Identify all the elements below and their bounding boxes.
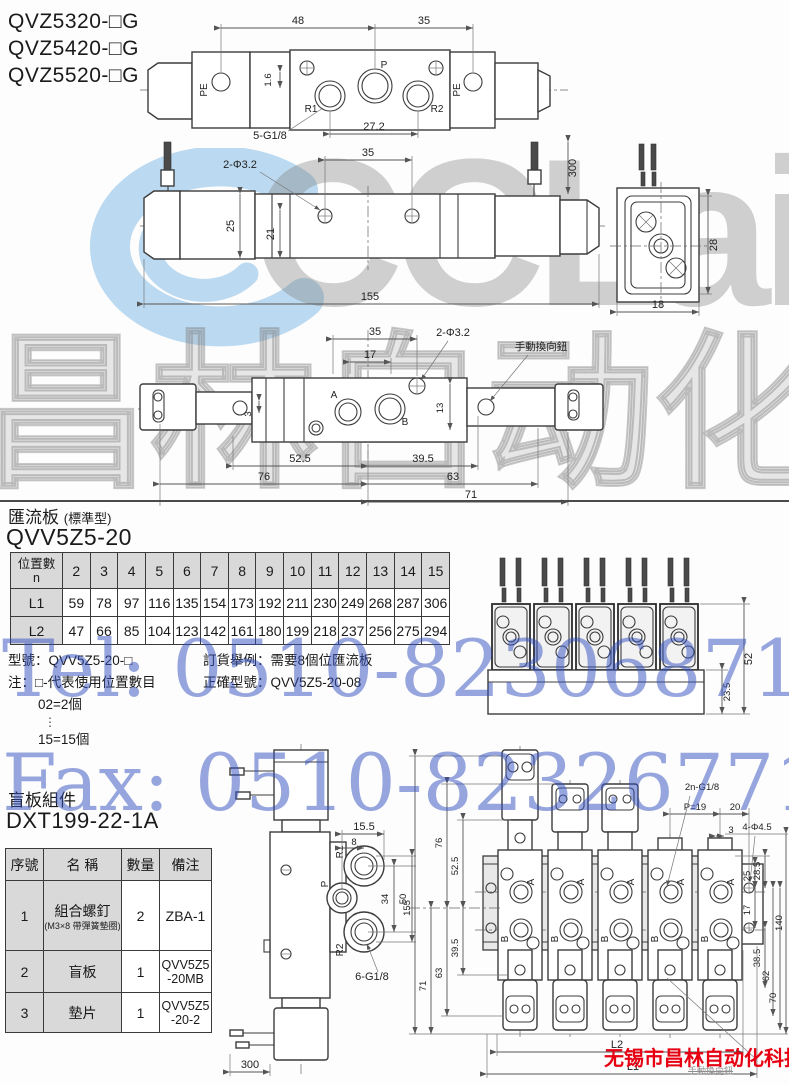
catalog-page: CCLair 昌林自动化 QVZ5320-□G QVZ5420-□G QVZ55… bbox=[0, 0, 789, 1085]
dim-52-5: 52.5 bbox=[289, 453, 310, 465]
drawing-bottom-view: 3 A B 2-Φ3.2 35 17 13 手動換向鈕 52.5 39.5 bbox=[138, 324, 608, 510]
dim-35: 35 bbox=[369, 326, 381, 338]
dim-39-5: 39.5 bbox=[412, 453, 433, 465]
dim-34: 34 bbox=[380, 894, 391, 905]
ordering-note-left: 型號：QVV5Z5-20-□ 注：□-代表使用位置數目 02=2個 ⋮ 15=1… bbox=[8, 650, 203, 751]
dim-62: 62 bbox=[761, 971, 772, 982]
dim-48: 48 bbox=[292, 15, 304, 27]
port-label-b: B bbox=[700, 935, 711, 942]
dim-38-5: 38.5 bbox=[752, 949, 763, 968]
thread-note-2ng18: 2n-G1/8 bbox=[685, 782, 719, 793]
port-label-r1: R1 bbox=[335, 845, 346, 858]
drawing-valve-vertical: 300 R1 P R2 15.5 8 34 50 6-G1/8 bbox=[228, 744, 420, 1085]
port-label-p: P bbox=[320, 880, 331, 887]
dim-1-6: 1.6 bbox=[263, 73, 274, 86]
dim-13: 13 bbox=[435, 403, 446, 414]
model-3: QVZ5520-□G bbox=[8, 62, 139, 89]
port-label-b: B bbox=[500, 935, 511, 942]
ellipsis: ⋮ bbox=[44, 716, 203, 729]
mount-plate-left bbox=[140, 384, 196, 430]
section-divider bbox=[0, 500, 789, 502]
drawing-manifold-side: 52 23.5 bbox=[478, 552, 789, 720]
parts-row-2: 2 盲板 1 QVV5Z5-20MB bbox=[6, 951, 212, 993]
holes-note-2phi32: 2-Φ3.2 bbox=[436, 327, 470, 339]
dim-15-5: 15.5 bbox=[353, 821, 374, 833]
order-example-line: 訂貨舉例：需要8個位匯流板 bbox=[203, 650, 453, 672]
manifold-valves bbox=[492, 558, 698, 670]
dim-39-5: 39.5 bbox=[450, 939, 461, 958]
mount-plate-right bbox=[555, 384, 603, 430]
dim-155: 155 bbox=[361, 291, 379, 303]
parts-row-3: 3 墊片 1 QVV5Z5-20-2 bbox=[6, 993, 212, 1033]
holes-note-4phi45: 4-Φ4.5 bbox=[742, 822, 771, 833]
manifold-base bbox=[488, 670, 704, 714]
port-label-a: A bbox=[331, 390, 338, 401]
thread-note-6g18: 6-G1/8 bbox=[355, 971, 389, 983]
solenoid-bottom bbox=[230, 998, 328, 1060]
dim-300: 300 bbox=[241, 1059, 259, 1071]
port-label-a: A bbox=[676, 878, 687, 885]
dim-76: 76 bbox=[258, 471, 270, 483]
valve-body bbox=[270, 832, 330, 998]
port-label-p: P bbox=[381, 60, 388, 71]
dim-3: 3 bbox=[243, 411, 254, 416]
parts-header-row: 序號 名 稱 數量 備注 bbox=[6, 849, 212, 881]
model-code-line: 型號：QVV5Z5-20-□ bbox=[8, 650, 203, 672]
model-1: QVZ5320-□G bbox=[8, 8, 139, 35]
dim-71: 71 bbox=[418, 981, 429, 992]
parts-table: 序號 名 稱 數量 備注 1 組合螺釘(M3×8 帶彈簧墊圈) 2 ZBA-1 … bbox=[5, 848, 212, 1033]
blind-plate-model-number: DXT199-22-1A bbox=[6, 808, 159, 834]
port-label-r2: R2 bbox=[335, 943, 346, 956]
port-label-r1: R1 bbox=[305, 104, 318, 115]
dim-20: 20 bbox=[730, 802, 741, 813]
table-row-l2: L2 4766 85104 123142 161180 199218 23725… bbox=[11, 617, 450, 645]
manual-knob-label: 手動換向鈕 bbox=[515, 340, 568, 353]
port-label-a: A bbox=[526, 878, 537, 885]
dim-63: 63 bbox=[447, 471, 459, 483]
dim-17: 17 bbox=[742, 905, 753, 916]
solenoid-antenna-left bbox=[161, 142, 174, 192]
dim-17: 17 bbox=[364, 349, 376, 361]
dim-140: 140 bbox=[774, 915, 785, 931]
table-header-row: 位置數n 23 45 67 89 1011 1213 1415 bbox=[11, 553, 450, 589]
manual-knob-small-label: 手動換向鈕 bbox=[688, 1064, 733, 1077]
drawing-top-view: 2-Φ3.2 35 25 21 300 155 28 bbox=[140, 138, 740, 320]
dim-8: 8 bbox=[351, 837, 356, 848]
port-label-a: A bbox=[626, 878, 637, 885]
order-model-line: 正確型號：QVV5Z5-20-08 bbox=[203, 672, 453, 694]
table-row-l1: L1 5978 97116 135154 173192 211230 24926… bbox=[11, 589, 450, 617]
port-label-pe-left: PE bbox=[199, 83, 210, 97]
model-list: QVZ5320-□G QVZ5420-□G QVZ5520-□G bbox=[8, 8, 139, 89]
example-first: 02=2個 bbox=[38, 694, 203, 716]
part-note-gasket: QVV5Z5-20-2 bbox=[160, 993, 212, 1033]
valve-end-view bbox=[610, 144, 710, 308]
dim-52: 52 bbox=[743, 653, 755, 665]
dim-23-5: 23.5 bbox=[722, 683, 733, 702]
dim-25: 25 bbox=[225, 220, 237, 232]
dim-28: 28 bbox=[708, 239, 720, 251]
part-name-screw: 組合螺釘(M3×8 帶彈簧墊圈) bbox=[44, 881, 122, 951]
drawing-manifold-face: A A A A A B B B B B 155 71 76 63 bbox=[405, 738, 789, 1085]
solenoid-top bbox=[230, 750, 328, 832]
example-last: 15=15個 bbox=[38, 729, 203, 751]
port-label-a: A bbox=[726, 878, 737, 885]
dim-35-top: 35 bbox=[362, 147, 374, 159]
part-note-blind: QVV5Z5-20MB bbox=[160, 951, 212, 993]
dim-18: 18 bbox=[652, 299, 664, 311]
dim-300: 300 bbox=[567, 159, 579, 177]
ordering-note-right: 訂貨舉例：需要8個位匯流板 正確型號：QVV5Z5-20-08 bbox=[203, 650, 453, 694]
port-label-b: B bbox=[402, 417, 409, 428]
dim-70: 70 bbox=[768, 993, 779, 1004]
port-label-b: B bbox=[550, 935, 561, 942]
dim-27-2: 27.2 bbox=[363, 121, 384, 133]
dim-52-5: 52.5 bbox=[450, 857, 461, 876]
pos-header: 位置數n bbox=[11, 553, 63, 589]
dim-63: 63 bbox=[434, 968, 445, 979]
port-label-b: B bbox=[650, 935, 661, 942]
port-label-b: B bbox=[600, 935, 611, 942]
dim-35: 35 bbox=[418, 15, 430, 27]
port-label-pe-right: PE bbox=[452, 83, 463, 97]
parts-row-1: 1 組合螺釘(M3×8 帶彈簧墊圈) 2 ZBA-1 bbox=[6, 881, 212, 951]
dim-76: 76 bbox=[434, 838, 445, 849]
note-line: 注：□-代表使用位置數目 bbox=[8, 672, 203, 694]
solenoid-antenna-right bbox=[528, 142, 541, 196]
dim-155: 155 bbox=[402, 900, 413, 916]
drawing-side-view: PE R1 P R2 PE 48 35 1.6 27.2 5-G1/8 bbox=[140, 12, 570, 144]
holes-note-2phi32: 2-Φ3.2 bbox=[223, 159, 257, 171]
dim-28-5: 28.5 bbox=[752, 862, 763, 881]
port-label-a: A bbox=[576, 878, 587, 885]
port-label-r2: R2 bbox=[431, 104, 444, 115]
manifold-model-number: QVV5Z5-20 bbox=[6, 524, 132, 551]
dim-21: 21 bbox=[265, 228, 277, 240]
manifold-dimension-table: 位置數n 23 45 67 89 1011 1213 1415 L1 5978 … bbox=[10, 552, 450, 645]
model-2: QVZ5420-□G bbox=[8, 35, 139, 62]
